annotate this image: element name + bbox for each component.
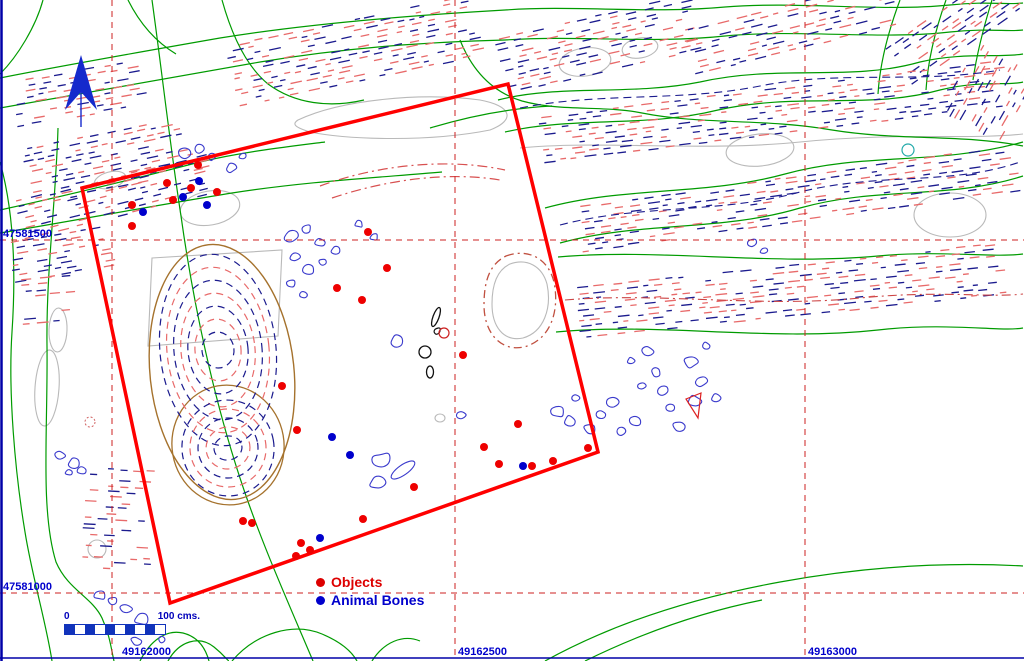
object-point bbox=[163, 179, 171, 187]
object-point bbox=[169, 196, 177, 204]
scale-bar-cells bbox=[64, 624, 166, 635]
object-point bbox=[293, 426, 301, 434]
animal-bone-point bbox=[195, 177, 203, 185]
north-arrow bbox=[65, 55, 97, 127]
scale-bar-segment bbox=[115, 625, 125, 634]
object-point bbox=[358, 296, 366, 304]
scale-bar-segment bbox=[135, 625, 145, 634]
object-point bbox=[213, 188, 221, 196]
object-point bbox=[297, 539, 305, 547]
legend-animal-bones-label: Animal Bones bbox=[331, 592, 424, 609]
object-point bbox=[495, 460, 503, 468]
scale-end-label: 100 cms. bbox=[158, 611, 200, 623]
object-point bbox=[410, 483, 418, 491]
object-point bbox=[584, 444, 592, 452]
scale-bar-segment bbox=[85, 625, 95, 634]
legend-objects-row: Objects bbox=[316, 574, 424, 591]
object-point bbox=[383, 264, 391, 272]
animal-bone-point bbox=[346, 451, 354, 459]
site-map: 4916200049162500491630004758150047581000… bbox=[0, 0, 1024, 661]
object-point bbox=[248, 519, 256, 527]
objects-marker-icon bbox=[316, 578, 325, 587]
object-point bbox=[514, 420, 522, 428]
object-point bbox=[459, 351, 467, 359]
legend-objects-label: Objects bbox=[331, 574, 382, 591]
object-point bbox=[194, 161, 202, 169]
animal-bone-point bbox=[328, 433, 336, 441]
map-canvas: 4916200049162500491630004758150047581000 bbox=[0, 0, 1024, 661]
object-point bbox=[528, 462, 536, 470]
grid-label: 49162500 bbox=[458, 646, 507, 658]
object-point bbox=[128, 222, 136, 230]
scale-bar-segment bbox=[125, 625, 135, 634]
object-point bbox=[128, 201, 136, 209]
object-point bbox=[549, 457, 557, 465]
scale-start-label: 0 bbox=[64, 611, 70, 623]
grid-label: 49163000 bbox=[808, 646, 857, 658]
scale-bar-segment bbox=[105, 625, 115, 634]
object-point bbox=[333, 284, 341, 292]
grid-label: 49162000 bbox=[122, 646, 171, 658]
animal-bones-marker-icon bbox=[316, 596, 325, 605]
scale-bar-segment bbox=[145, 625, 155, 634]
object-point bbox=[278, 382, 286, 390]
animal-bone-point bbox=[179, 193, 187, 201]
object-point bbox=[480, 443, 488, 451]
object-point bbox=[239, 517, 247, 525]
object-point bbox=[292, 552, 300, 560]
scale-bar: 0 100 cms. bbox=[64, 611, 200, 635]
object-point bbox=[359, 515, 367, 523]
legend: Objects Animal Bones bbox=[316, 574, 424, 609]
scale-bar-segment bbox=[65, 625, 75, 634]
grid-label: 47581500 bbox=[3, 228, 52, 240]
object-point bbox=[364, 228, 372, 236]
animal-bone-point bbox=[139, 208, 147, 216]
legend-animal-bones-row: Animal Bones bbox=[316, 592, 424, 609]
scale-bar-segment bbox=[155, 625, 165, 634]
animal-bone-point bbox=[203, 201, 211, 209]
object-point bbox=[306, 546, 314, 554]
animal-bone-point bbox=[519, 462, 527, 470]
scale-bar-segment bbox=[75, 625, 85, 634]
object-point bbox=[187, 184, 195, 192]
scale-bar-segment bbox=[95, 625, 105, 634]
animal-bone-point bbox=[316, 534, 324, 542]
grid-label: 47581000 bbox=[3, 581, 52, 593]
